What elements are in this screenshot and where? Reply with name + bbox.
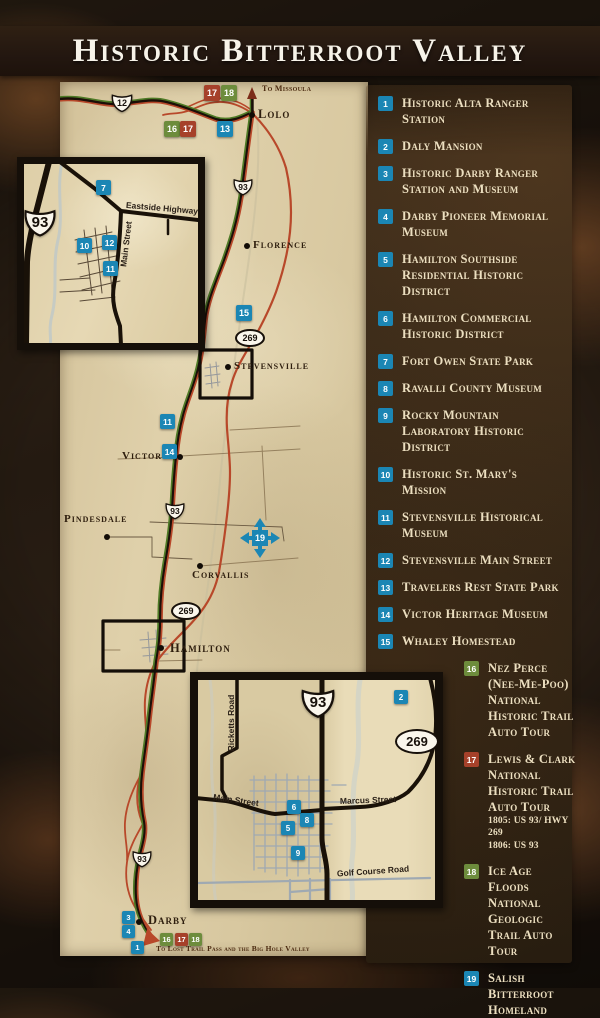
historic-bitterroot-valley-map: { "title": "Historic Bitterroot Valley",… xyxy=(0,0,600,988)
town-label-corvallis: Corvallis xyxy=(192,569,249,581)
legend-badge-7: 7 xyxy=(378,354,393,369)
hwy-269-shield-north: 269 xyxy=(235,329,265,347)
marker-14-victor-museum: 14 xyxy=(162,444,177,459)
legend-label-12: Stevensville Main Street xyxy=(402,552,552,568)
legend-item-15: 15Whaley Homestead xyxy=(378,633,562,649)
legend-badge-4: 4 xyxy=(378,209,393,224)
legend-badge-6: 6 xyxy=(378,311,393,326)
legend-badge-12: 12 xyxy=(378,553,393,568)
marker-18-lolo-north: 18 xyxy=(221,85,237,101)
us-93-shield-north: 93 xyxy=(232,177,254,196)
legend-badge-3: 3 xyxy=(378,166,393,181)
legend-items-1-15: 1Historic Alta Ranger Station 2Daly Mans… xyxy=(378,95,562,649)
town-label-pindesdale: Pindesdale xyxy=(64,513,127,525)
legend-badge-10: 10 xyxy=(378,467,393,482)
marker-12-stevensville-main: 12 xyxy=(102,235,117,250)
legend-sub-1806: 1806: US 93 xyxy=(488,840,576,852)
marker-16-darby: 16 xyxy=(160,933,173,946)
stevensville-inset-roads xyxy=(24,164,198,343)
town-label-florence: Florence xyxy=(253,239,307,251)
legend-item-10: 10Historic St. Mary's Mission xyxy=(378,466,562,498)
legend-label-9: Rocky Mountain Laboratory Historic Distr… xyxy=(402,407,562,455)
legend-item-1: 1Historic Alta Ranger Station xyxy=(378,95,562,127)
legend-badge-13: 13 xyxy=(378,580,393,595)
marker-5-hamilton-southside: 5 xyxy=(281,821,295,835)
direction-to-missoula: To Missoula xyxy=(262,84,311,93)
us-93-shield-south: 93 xyxy=(131,849,153,868)
legend-item-9: 9Rocky Mountain Laboratory Historic Dist… xyxy=(378,407,562,455)
legend-label-8: Ravalli County Museum xyxy=(402,380,542,396)
legend-badge-1: 1 xyxy=(378,96,393,111)
town-dot-stevensville xyxy=(225,364,231,370)
legend-label-18: Ice Age Floods National Geologic Trail A… xyxy=(488,863,576,959)
marker-15-whaley: 15 xyxy=(236,305,252,321)
marker-16-lolo: 16 xyxy=(164,121,180,137)
legend-item-18: 18Ice Age Floods National Geologic Trail… xyxy=(464,863,576,959)
marker-8-ravalli-museum: 8 xyxy=(300,813,314,827)
marker-9-rocky-mountain-lab: 9 xyxy=(291,846,305,860)
marker-10-st-marys: 10 xyxy=(77,238,92,253)
legend-label-15: Whaley Homestead xyxy=(402,633,516,649)
legend-sub-1805: 1805: US 93/ HWY 269 xyxy=(488,815,576,840)
legend-label-10: Historic St. Mary's Mission xyxy=(402,466,562,498)
legend-badge-11: 11 xyxy=(378,510,393,525)
legend-label-4: Darby Pioneer Memorial Museum xyxy=(402,208,562,240)
marker-11-stevensville-museum: 11 xyxy=(160,414,175,429)
legend-badge-14: 14 xyxy=(378,607,393,622)
street-label-marcus-street: Marcus Street xyxy=(340,794,397,806)
legend-label-17: Lewis & Clark National Historic Trail Au… xyxy=(488,751,576,852)
legend-label-2: Daly Mansion xyxy=(402,138,483,154)
legend-label-5: Hamilton Southside Residential Historic … xyxy=(402,251,562,299)
town-label-darby: Darby xyxy=(148,913,188,928)
marker-18-darby: 18 xyxy=(189,933,202,946)
marker-7-fort-owen: 7 xyxy=(96,180,111,195)
legend-label-11: Stevensville Historical Museum xyxy=(402,509,562,541)
legend-badge-2: 2 xyxy=(378,139,393,154)
legend-label-6: Hamilton Commercial Historic District xyxy=(402,310,562,342)
town-dot-darby xyxy=(136,919,142,925)
legend-badge-5: 5 xyxy=(378,252,393,267)
town-dot-florence xyxy=(244,243,250,249)
marker-11-stevensville-inset: 11 xyxy=(103,261,118,276)
town-dot-victor xyxy=(177,454,183,460)
legend-label-13: Travelers Rest State Park xyxy=(402,579,559,595)
legend-item-6: 6Hamilton Commercial Historic District xyxy=(378,310,562,342)
legend-badge-17: 17 xyxy=(464,752,479,767)
legend-badge-8: 8 xyxy=(378,381,393,396)
legend-item-2: 2Daly Mansion xyxy=(378,138,562,154)
us-93-shield-inset1: 93 xyxy=(22,206,58,238)
legend-item-4: 4Darby Pioneer Memorial Museum xyxy=(378,208,562,240)
marker-17-lolo-north: 17 xyxy=(204,85,220,101)
legend-item-5: 5Hamilton Southside Residential Historic… xyxy=(378,251,562,299)
legend-label-16: Nez Perce (Nee-Me-Poo) National Historic… xyxy=(488,660,576,740)
legend-label-14: Victor Heritage Museum xyxy=(402,606,548,622)
legend-badge-16: 16 xyxy=(464,661,479,676)
town-label-stevensville: Stevensville xyxy=(234,360,309,372)
town-dot-hamilton xyxy=(158,645,164,651)
legend-label-7: Fort Owen State Park xyxy=(402,353,533,369)
legend-item-16: 16Nez Perce (Nee-Me-Poo) National Histor… xyxy=(464,660,576,740)
legend-item-17: 17Lewis & Clark National Historic Trail … xyxy=(464,751,576,852)
us-93-shield-mid: 93 xyxy=(164,501,186,520)
legend-badge-19: 19 xyxy=(464,971,479,986)
town-dot-pindesdale xyxy=(104,534,110,540)
marker-19-salish-compass: 19 xyxy=(240,518,280,558)
legend-item-11: 11Stevensville Historical Museum xyxy=(378,509,562,541)
page-title: Historic Bitterroot Valley xyxy=(73,33,528,70)
town-label-lolo: Lolo xyxy=(258,107,290,122)
marker-4-darby-pioneer: 4 xyxy=(122,925,135,938)
legend-label-3: Historic Darby Ranger Station and Museum xyxy=(402,165,562,197)
hwy-269-shield-inset2: 269 xyxy=(395,729,439,754)
legend-item-13: 13Travelers Rest State Park xyxy=(378,579,562,595)
marker-6-hamilton-commercial: 6 xyxy=(287,800,301,814)
street-label-ricketts-road: Ricketts Road xyxy=(226,695,236,752)
marker-2-daly-mansion: 2 xyxy=(394,690,408,704)
hwy-269-shield-mid: 269 xyxy=(171,602,201,620)
title-bar: Historic Bitterroot Valley xyxy=(0,26,600,76)
legend-item-8: 8Ravalli County Museum xyxy=(378,380,562,396)
marker-1-alta-ranger-pin: 1 xyxy=(131,941,144,954)
marker-17-lolo: 17 xyxy=(180,121,196,137)
marker-17-darby: 17 xyxy=(175,933,188,946)
marker-3-darby-ranger: 3 xyxy=(122,911,135,924)
legend-item-19: 19Salish Bitterroot Homeland xyxy=(464,970,576,1018)
legend-item-3: 3Historic Darby Ranger Station and Museu… xyxy=(378,165,562,197)
legend-items-16-19: 16Nez Perce (Nee-Me-Poo) National Histor… xyxy=(464,660,576,1018)
town-label-hamilton: Hamilton xyxy=(170,641,231,656)
us-12-shield: 12 xyxy=(110,92,134,113)
legend-label-1: Historic Alta Ranger Station xyxy=(402,95,562,127)
legend-badge-9: 9 xyxy=(378,408,393,423)
us-93-shield-inset2: 93 xyxy=(299,686,337,719)
legend-label-19: Salish Bitterroot Homeland xyxy=(488,970,576,1018)
legend-item-12: 12Stevensville Main Street xyxy=(378,552,562,568)
town-label-victor: Victor xyxy=(122,450,162,462)
marker-13-travelers-rest: 13 xyxy=(217,121,233,137)
legend-badge-18: 18 xyxy=(464,864,479,879)
town-dot-lolo xyxy=(249,112,255,118)
legend-item-7: 7Fort Owen State Park xyxy=(378,353,562,369)
legend-item-14: 14Victor Heritage Museum xyxy=(378,606,562,622)
stevensville-inset-map xyxy=(17,157,205,350)
legend-badge-15: 15 xyxy=(378,634,393,649)
